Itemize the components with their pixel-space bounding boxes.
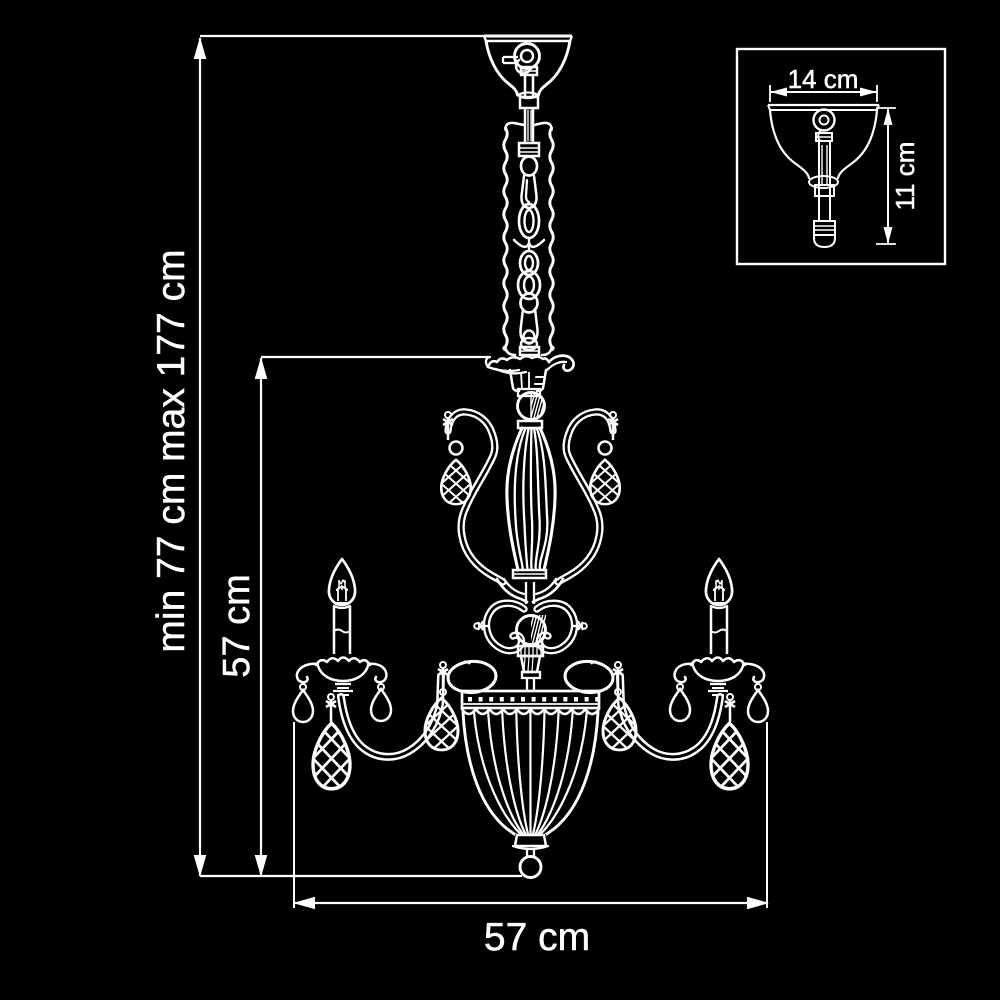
svg-text:57 cm: 57 cm xyxy=(484,916,590,959)
svg-text:57 cm: 57 cm xyxy=(216,574,258,677)
svg-text:11 cm: 11 cm xyxy=(890,142,920,211)
svg-text:14 cm: 14 cm xyxy=(788,64,859,94)
svg-text:min 77 cm max 177 cm: min 77 cm max 177 cm xyxy=(150,249,193,652)
